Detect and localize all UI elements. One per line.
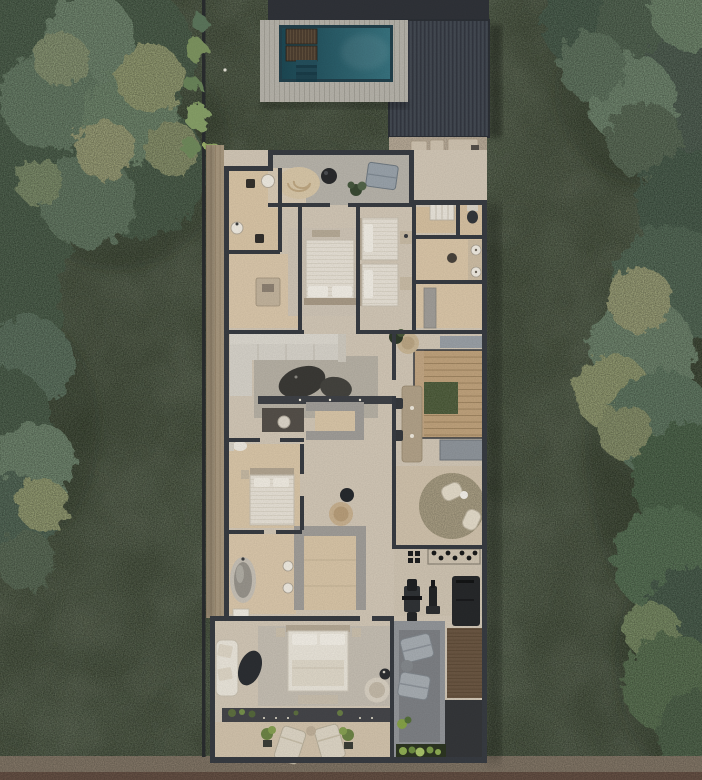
global-grain [0,0,702,780]
scene-canvas [0,0,702,780]
aerial-floorplan-render [0,0,702,780]
